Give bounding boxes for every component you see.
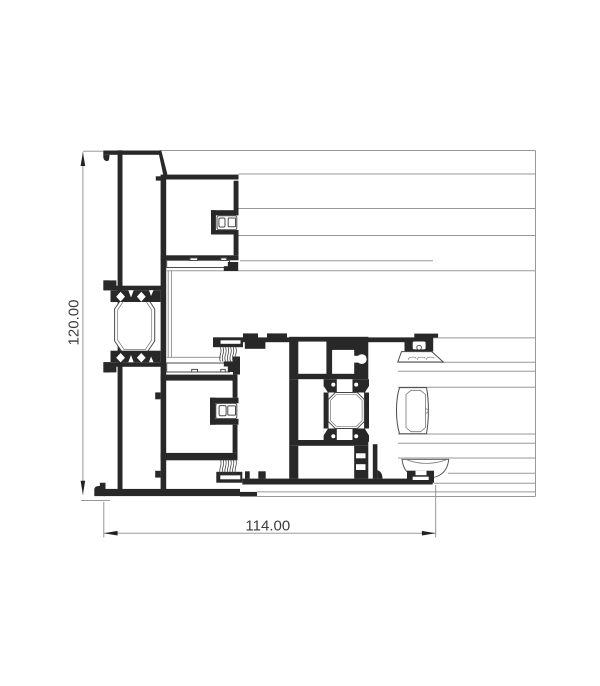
svg-text:114.00: 114.00	[245, 517, 290, 534]
svg-text:120.00: 120.00	[66, 300, 83, 346]
